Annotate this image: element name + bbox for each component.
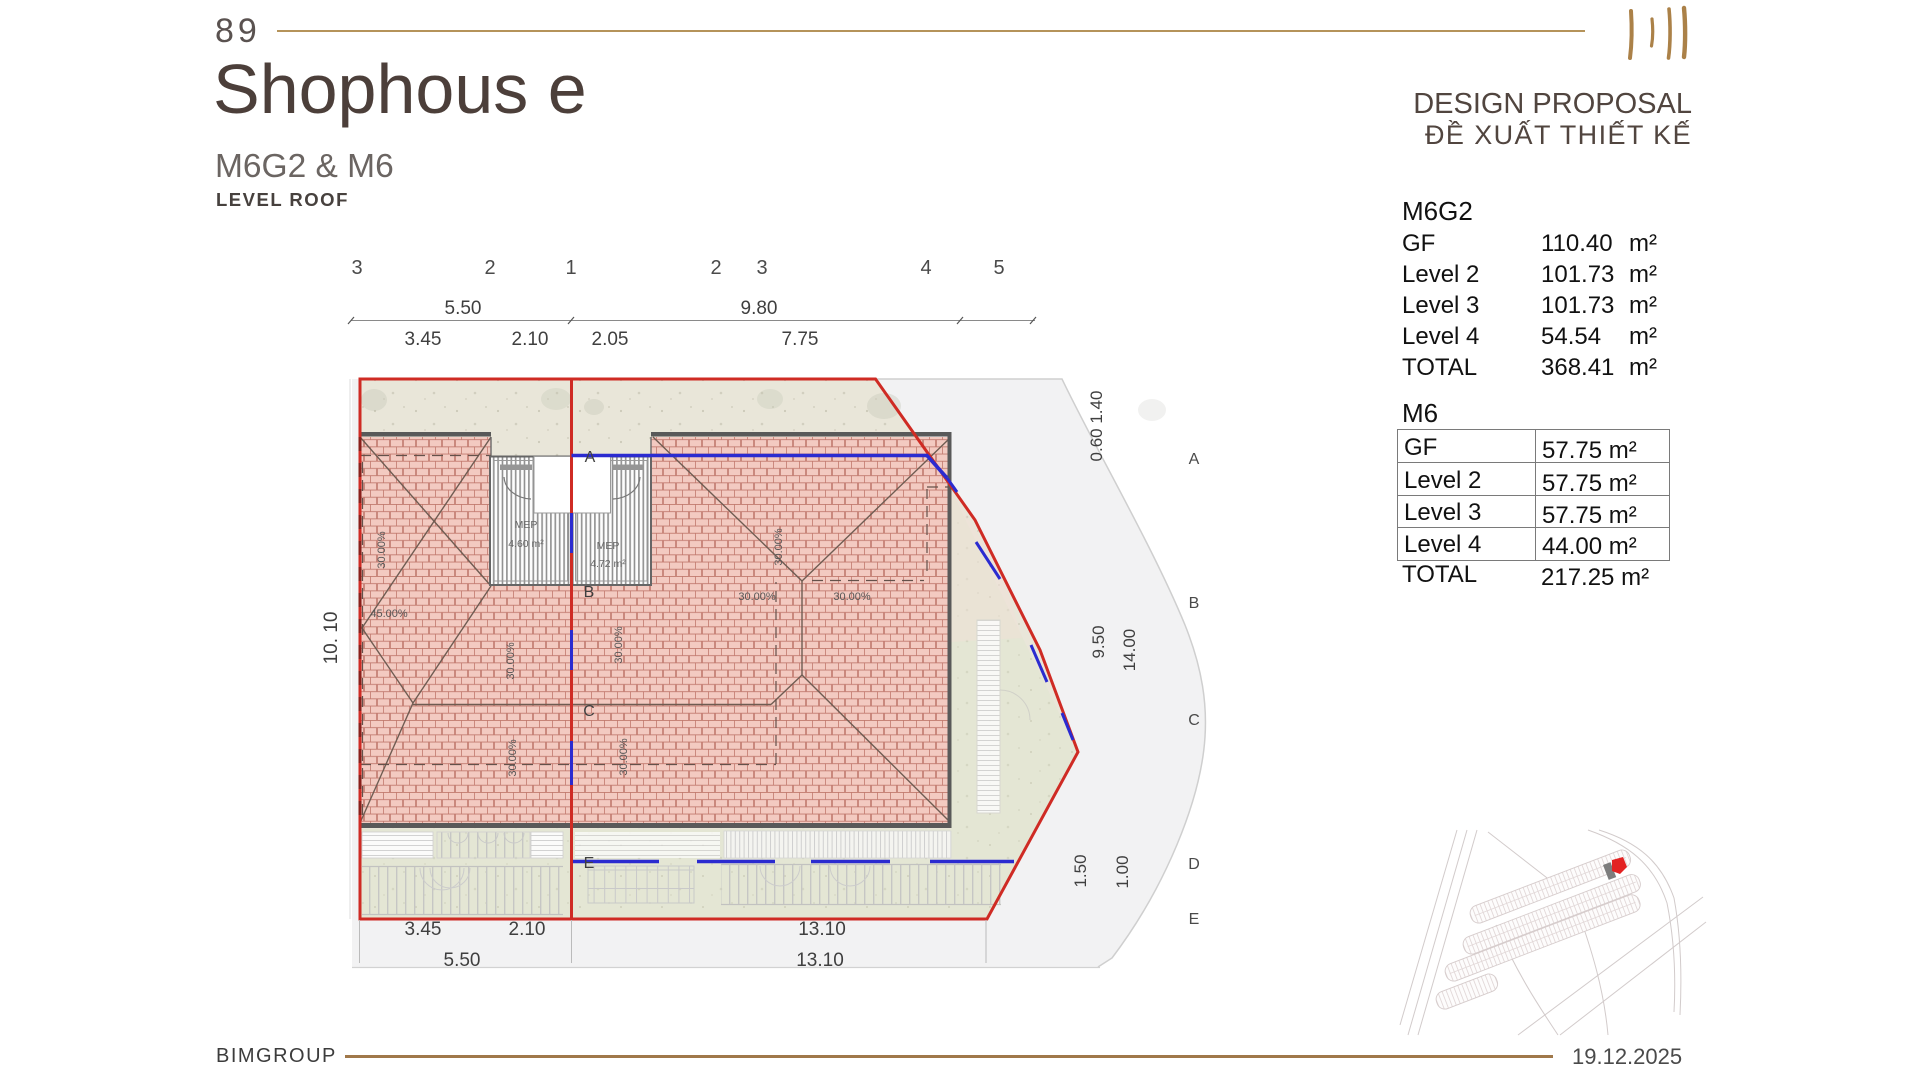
svg-text:2.10: 2.10 [512,329,549,350]
svg-text:2.10: 2.10 [509,919,546,940]
svg-text:3.45: 3.45 [405,919,442,940]
svg-text:3: 3 [756,257,767,279]
svg-text:1: 1 [565,257,576,279]
svg-text:C: C [1188,712,1200,729]
svg-text:30.00%: 30.00% [773,528,785,566]
svg-text:1.00: 1.00 [1113,855,1132,888]
svg-text:C: C [583,703,595,720]
svg-text:4.60 m²: 4.60 m² [508,538,544,550]
svg-text:14.00: 14.00 [1120,629,1139,672]
svg-text:2.05: 2.05 [592,329,629,350]
svg-text:13.10: 13.10 [796,950,844,971]
svg-text:B: B [1189,595,1200,612]
svg-text:30.00%: 30.00% [833,591,871,603]
svg-text:D: D [1188,856,1200,873]
svg-text:4.72 m²: 4.72 m² [590,558,626,570]
svg-text:30.00%: 30.00% [613,626,625,664]
svg-text:30.00%: 30.00% [507,739,519,777]
svg-text:45.00%: 45.00% [370,608,408,620]
svg-text:0.60 1.40: 0.60 1.40 [1087,391,1106,462]
svg-text:5.50: 5.50 [445,298,482,319]
svg-text:30.00%: 30.00% [376,531,388,569]
svg-text:2: 2 [484,257,495,279]
svg-text:30.00%: 30.00% [618,738,630,776]
svg-text:5: 5 [993,257,1004,279]
svg-text:10. 10: 10. 10 [321,612,342,665]
svg-text:13.10: 13.10 [798,919,846,940]
svg-text:3: 3 [351,257,362,279]
svg-text:E: E [1189,911,1200,928]
svg-text:7.75: 7.75 [782,329,819,350]
svg-text:A: A [1189,451,1200,468]
svg-text:E: E [584,855,595,872]
svg-text:30.00%: 30.00% [738,591,776,603]
svg-text:9.50: 9.50 [1089,625,1108,658]
svg-text:1.50: 1.50 [1071,854,1090,887]
svg-text:B: B [584,584,595,601]
svg-text:3.45: 3.45 [405,329,442,350]
svg-text:4: 4 [920,257,931,279]
svg-text:MEP: MEP [597,540,620,552]
svg-text:2: 2 [710,257,721,279]
svg-text:9.80: 9.80 [741,298,778,319]
svg-text:A: A [585,449,596,466]
svg-text:5.50: 5.50 [444,950,481,971]
svg-text:30.00%: 30.00% [505,642,517,680]
svg-text:MEP: MEP [515,519,538,531]
